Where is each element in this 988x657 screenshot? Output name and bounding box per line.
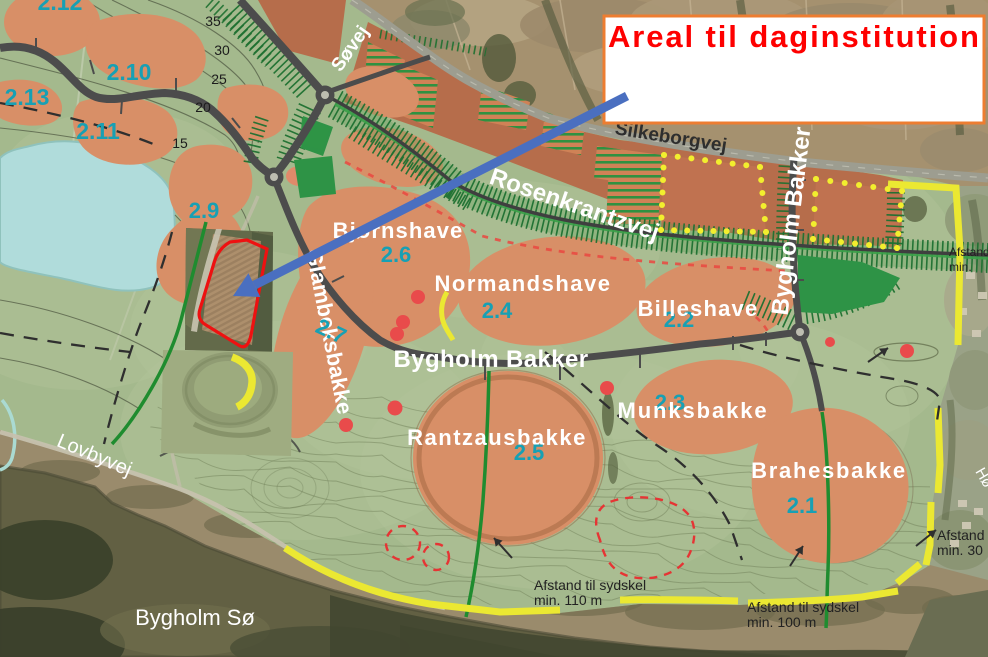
svg-text:Rantzausbakke: Rantzausbakke: [407, 425, 587, 450]
svg-text:2.12: 2.12: [38, 0, 83, 15]
svg-text:2.1: 2.1: [787, 493, 818, 518]
svg-text:Afstand til sydskel: Afstand til sydskel: [747, 599, 859, 615]
svg-text:Bygholm Bakker: Bygholm Bakker: [394, 346, 589, 373]
svg-text:25: 25: [211, 71, 227, 87]
svg-text:Bygholm Sø: Bygholm Sø: [135, 605, 255, 630]
svg-text:Afstand: Afstand: [937, 527, 984, 543]
svg-text:2.11: 2.11: [76, 118, 120, 144]
svg-text:2.10: 2.10: [107, 59, 152, 85]
svg-text:Billeshave: Billeshave: [638, 296, 759, 321]
svg-text:min. 100 m: min. 100 m: [747, 614, 816, 630]
svg-text:Munksbakke: Munksbakke: [617, 398, 768, 423]
svg-text:35: 35: [205, 13, 221, 29]
svg-text:2.9: 2.9: [189, 198, 220, 223]
svg-text:2.5: 2.5: [514, 440, 545, 465]
svg-text:min. 110 m: min. 110 m: [534, 592, 602, 608]
svg-text:20: 20: [195, 99, 211, 115]
svg-text:Areal til daginstitution: Areal til daginstitution: [608, 19, 981, 54]
svg-text:30: 30: [214, 42, 230, 58]
svg-text:15: 15: [172, 135, 188, 151]
svg-text:min.: min.: [949, 260, 972, 274]
svg-text:2.13: 2.13: [5, 84, 50, 110]
svg-text:2.6: 2.6: [381, 242, 412, 267]
svg-text:Brahesbakke: Brahesbakke: [751, 458, 907, 483]
svg-text:Afstand: Afstand: [949, 245, 988, 259]
svg-text:min. 30: min. 30: [937, 542, 983, 558]
svg-text:2.4: 2.4: [482, 298, 513, 323]
svg-text:Afstand til sydskel: Afstand til sydskel: [534, 577, 646, 593]
svg-text:Normandshave: Normandshave: [435, 271, 612, 296]
